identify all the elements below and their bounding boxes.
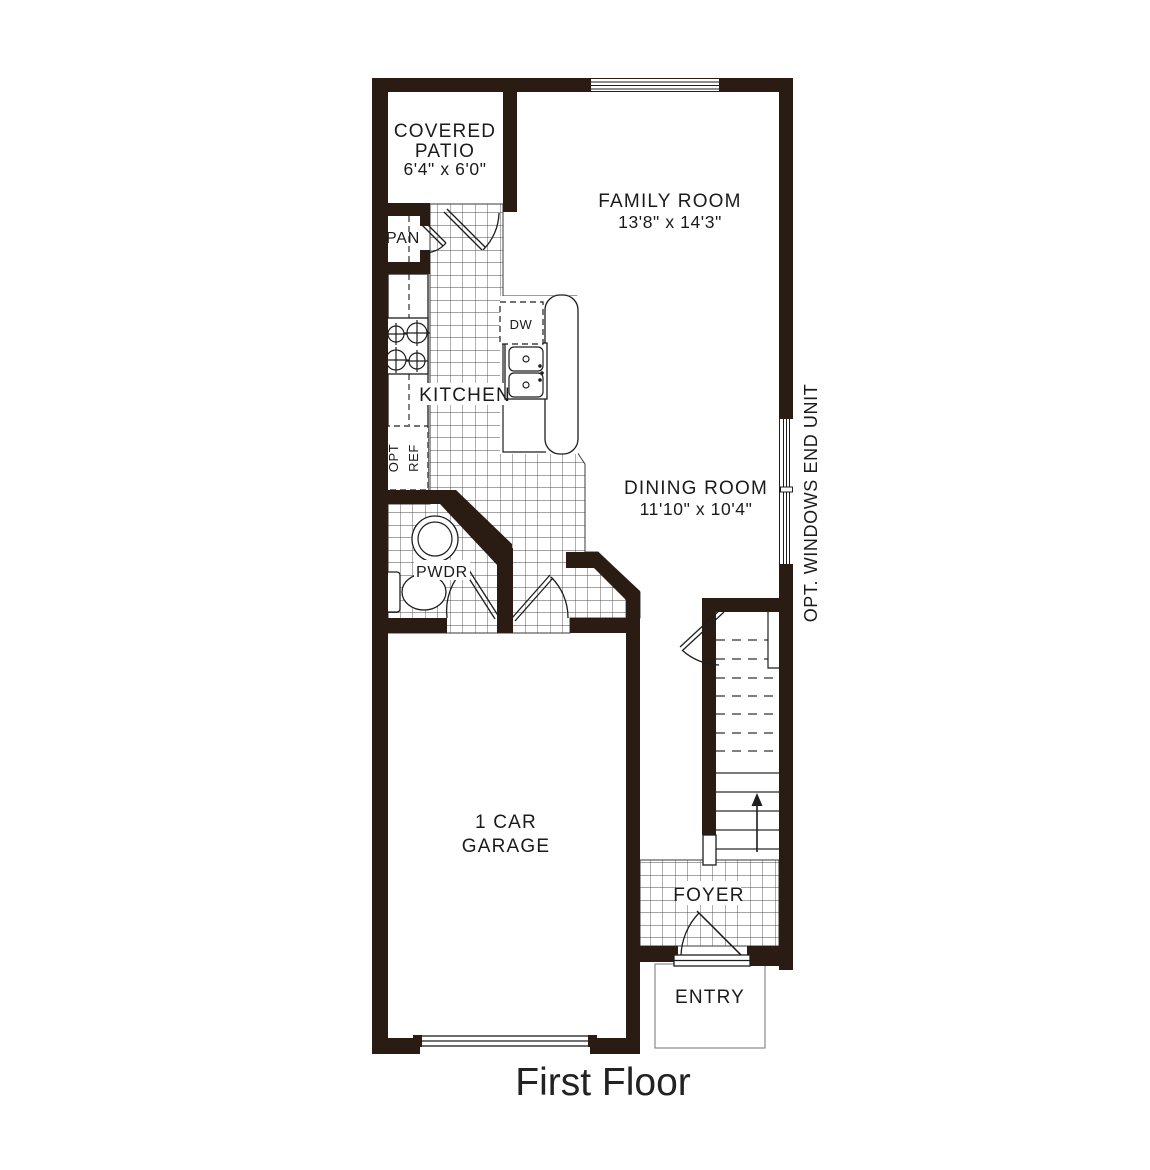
window-cap	[585, 79, 591, 92]
family-room-label: FAMILY ROOM	[598, 191, 741, 212]
stair-upper-flight-dashed	[716, 640, 779, 751]
foyer-label-group: FOYER	[673, 881, 744, 906]
window-cap	[779, 564, 793, 577]
window-mullion	[781, 487, 793, 492]
floor-plan: OPT REF DW	[0, 0, 1150, 1170]
dining-room-label-group: DINING ROOM 11'10" x 10'4"	[624, 478, 768, 519]
dishwasher-label: DW	[510, 317, 533, 332]
garage-label-2: GARAGE	[462, 836, 551, 857]
powder-label: PWDR	[416, 564, 468, 581]
wall-stair-left	[702, 598, 716, 835]
garage-door	[413, 1035, 597, 1047]
wall-pantry-jamb-bottom	[420, 250, 430, 262]
wall-patio-bottom	[372, 203, 430, 216]
stair-lower-flight	[716, 773, 779, 849]
stove	[382, 318, 428, 374]
kitchen-label-group: KITCHEN	[419, 383, 511, 406]
wall-powder-door-jamb	[497, 548, 513, 633]
covered-patio-dims: 6'4" x 6'0"	[403, 159, 486, 179]
stair-up-arrow-icon	[752, 793, 763, 852]
wall-garage-bottom-left	[372, 1038, 420, 1054]
wall-pantry-bottom	[372, 262, 430, 274]
powder-sink	[412, 516, 458, 562]
pantry-label: PAN	[386, 230, 420, 247]
wall-powder-top	[372, 490, 442, 504]
opt-windows-note: OPT. WINDOWS END UNIT	[801, 384, 821, 623]
covered-patio-label-1: COVERED	[394, 121, 496, 142]
wall-foyer-bottom-left	[638, 946, 678, 962]
garage-label-group: 1 CAR GARAGE	[462, 812, 551, 857]
wall-garage-top-left	[372, 618, 447, 633]
floor-plan-page: OPT REF DW	[0, 0, 1150, 1170]
entry-label: ENTRY	[675, 987, 745, 1008]
foyer-label: FOYER	[673, 885, 744, 906]
island-counter	[545, 295, 578, 454]
stair-base-jamb	[703, 835, 716, 865]
family-room-label-group: FAMILY ROOM 13'8" x 14'3"	[598, 191, 741, 232]
front-door-sill	[674, 955, 750, 966]
opt-ref-label-2: REF	[406, 444, 421, 472]
dining-room-label: DINING ROOM	[624, 478, 768, 499]
garage-label-1: 1 CAR	[475, 812, 537, 833]
wall-patio-right	[503, 78, 517, 212]
powder-label-group: PWDR	[414, 560, 470, 581]
wall-garage-right	[626, 592, 640, 1052]
wall-top	[372, 78, 793, 92]
page-title: First Floor	[515, 1061, 691, 1104]
family-room-dims: 13'8" x 14'3"	[618, 212, 722, 232]
window-cap	[779, 406, 793, 419]
wall-pantry-jamb-top	[420, 216, 430, 226]
stair-upper-landing-line	[768, 612, 779, 668]
wall-foyer-bottom-right	[747, 946, 793, 966]
window-cap	[719, 79, 725, 92]
wall-stair-top	[713, 598, 793, 612]
covered-patio-label-group: COVERED PATIO 6'4" x 6'0"	[394, 121, 496, 179]
kitchen-label: KITCHEN	[419, 385, 511, 406]
dining-room-dims: 11'10" x 10'4"	[640, 499, 753, 519]
opt-ref-label-1: OPT	[386, 444, 401, 473]
wall-left	[372, 78, 388, 1052]
wall-garage-bottom-right	[590, 1038, 640, 1054]
